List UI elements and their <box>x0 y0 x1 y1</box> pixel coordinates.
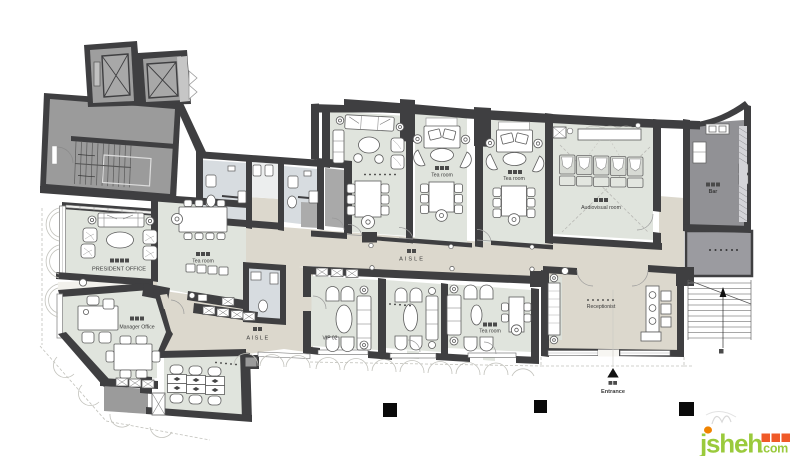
svg-text:Tea room: Tea room <box>503 176 525 182</box>
svg-text:Bar: Bar <box>709 189 718 195</box>
svg-text:Tea room: Tea room <box>431 173 453 179</box>
svg-text:Manager Office: Manager Office <box>119 325 154 331</box>
svg-text:Receptionist: Receptionist <box>587 304 616 310</box>
svg-text:Tea room: Tea room <box>192 259 214 265</box>
svg-text:AISLE: AISLE <box>399 257 425 263</box>
svg-text:Entrance: Entrance <box>601 389 625 395</box>
svg-text:AISLE: AISLE <box>246 336 269 342</box>
svg-text:jsheh: jsheh <box>699 429 762 456</box>
svg-text:Tea room: Tea room <box>479 329 501 335</box>
svg-text:Audiovisual room: Audiovisual room <box>581 205 621 211</box>
svg-text:VIP 02: VIP 02 <box>323 336 338 342</box>
svg-text:.com: .com <box>760 442 788 456</box>
svg-text:PRESIDENT OFFICE: PRESIDENT OFFICE <box>92 267 146 273</box>
